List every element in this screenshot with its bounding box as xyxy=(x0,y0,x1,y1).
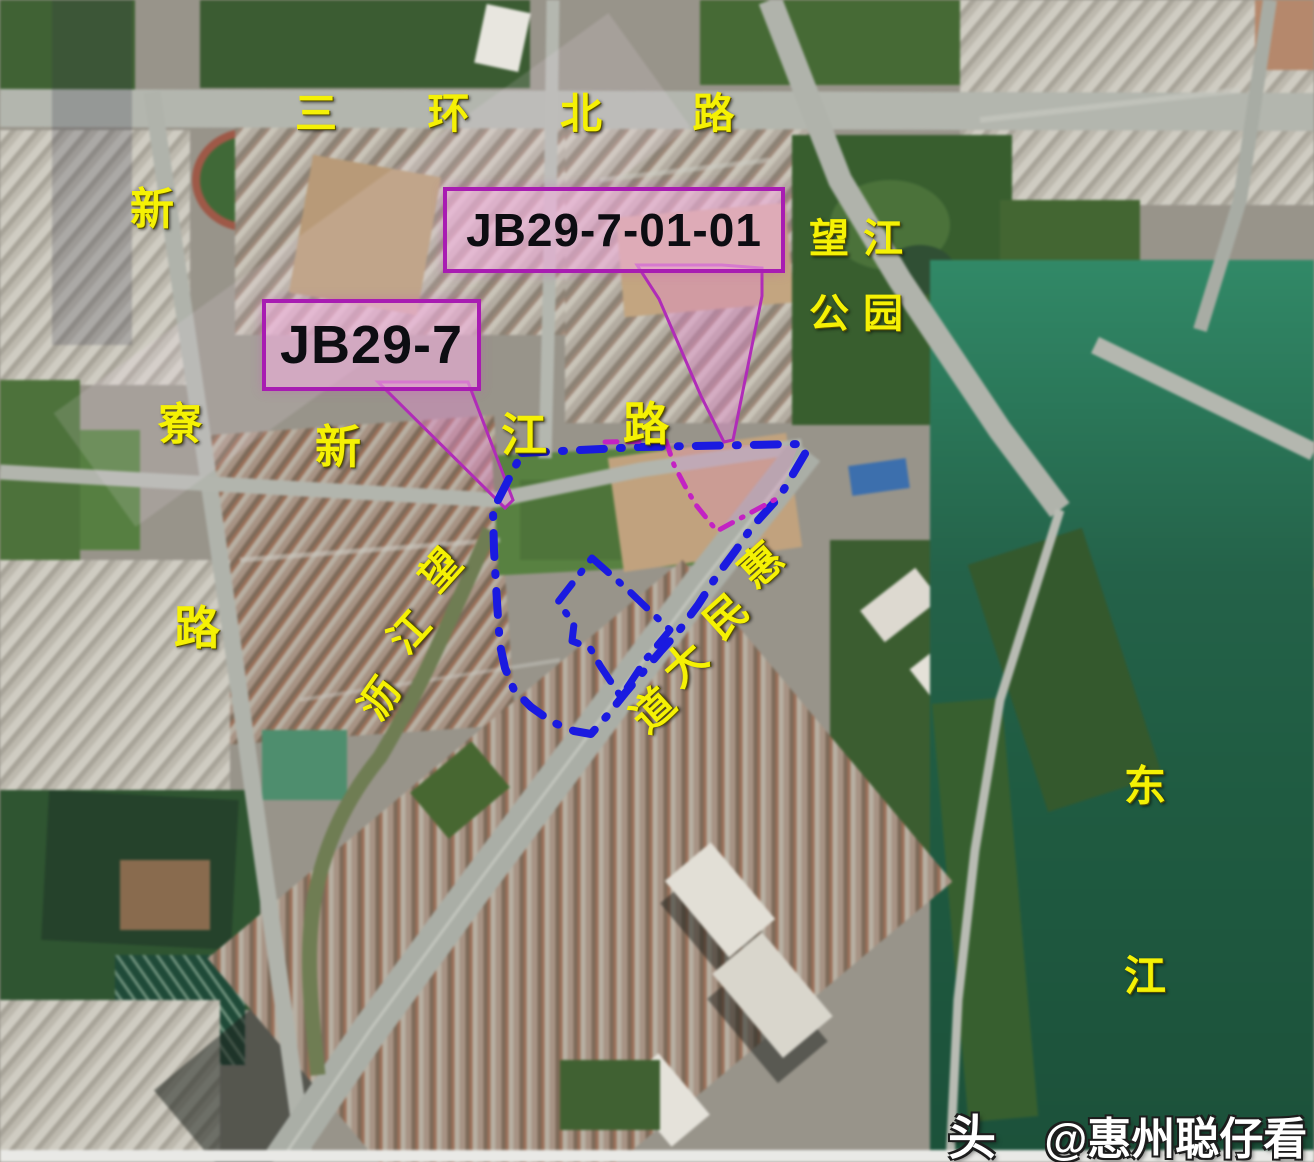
road-label-xinliao-char-3: 路 xyxy=(174,592,220,658)
road-label-xinjiang-char-3: 路 xyxy=(623,388,669,454)
road-label-sanhuan-beilu: 三 环 北 路 xyxy=(295,80,775,141)
callout-pointer-jb29-7 xyxy=(378,382,513,508)
road-label-xinjiang-char-2: 江 xyxy=(501,399,547,465)
inner-parcel-boundary xyxy=(558,558,670,697)
parcel-callout-jb29-7-01-01: JB29-7-01-01 xyxy=(443,187,785,273)
water-label-dongjiang-char-2: 江 xyxy=(1124,943,1166,1004)
road-label-xinliao-char-1: 新 xyxy=(130,173,174,237)
watermark: 头条 @惠州聪仔看房 xyxy=(948,1098,1314,1162)
place-label-wangjiang-park-line2: 公园 xyxy=(809,281,917,339)
watermark-handle: @惠州聪仔看房 xyxy=(1044,1103,1314,1162)
water-label-dongjiang-char-1: 东 xyxy=(1124,753,1166,814)
parcel-callout-jb29-7: JB29-7 xyxy=(262,299,481,391)
parcel-boundary-overlay xyxy=(0,0,1314,1162)
satellite-land-parcel-map: JB29-7-01-01 JB29-7 三 环 北 路 新 寮 路 新 江 路 … xyxy=(0,0,1314,1162)
watermark-brand: 头条 xyxy=(948,1098,1032,1162)
road-label-xinliao-char-2: 寮 xyxy=(158,388,202,452)
place-label-wangjiang-park-line1: 望江 xyxy=(809,206,917,264)
road-label-xinjiang-char-1: 新 xyxy=(315,411,361,477)
